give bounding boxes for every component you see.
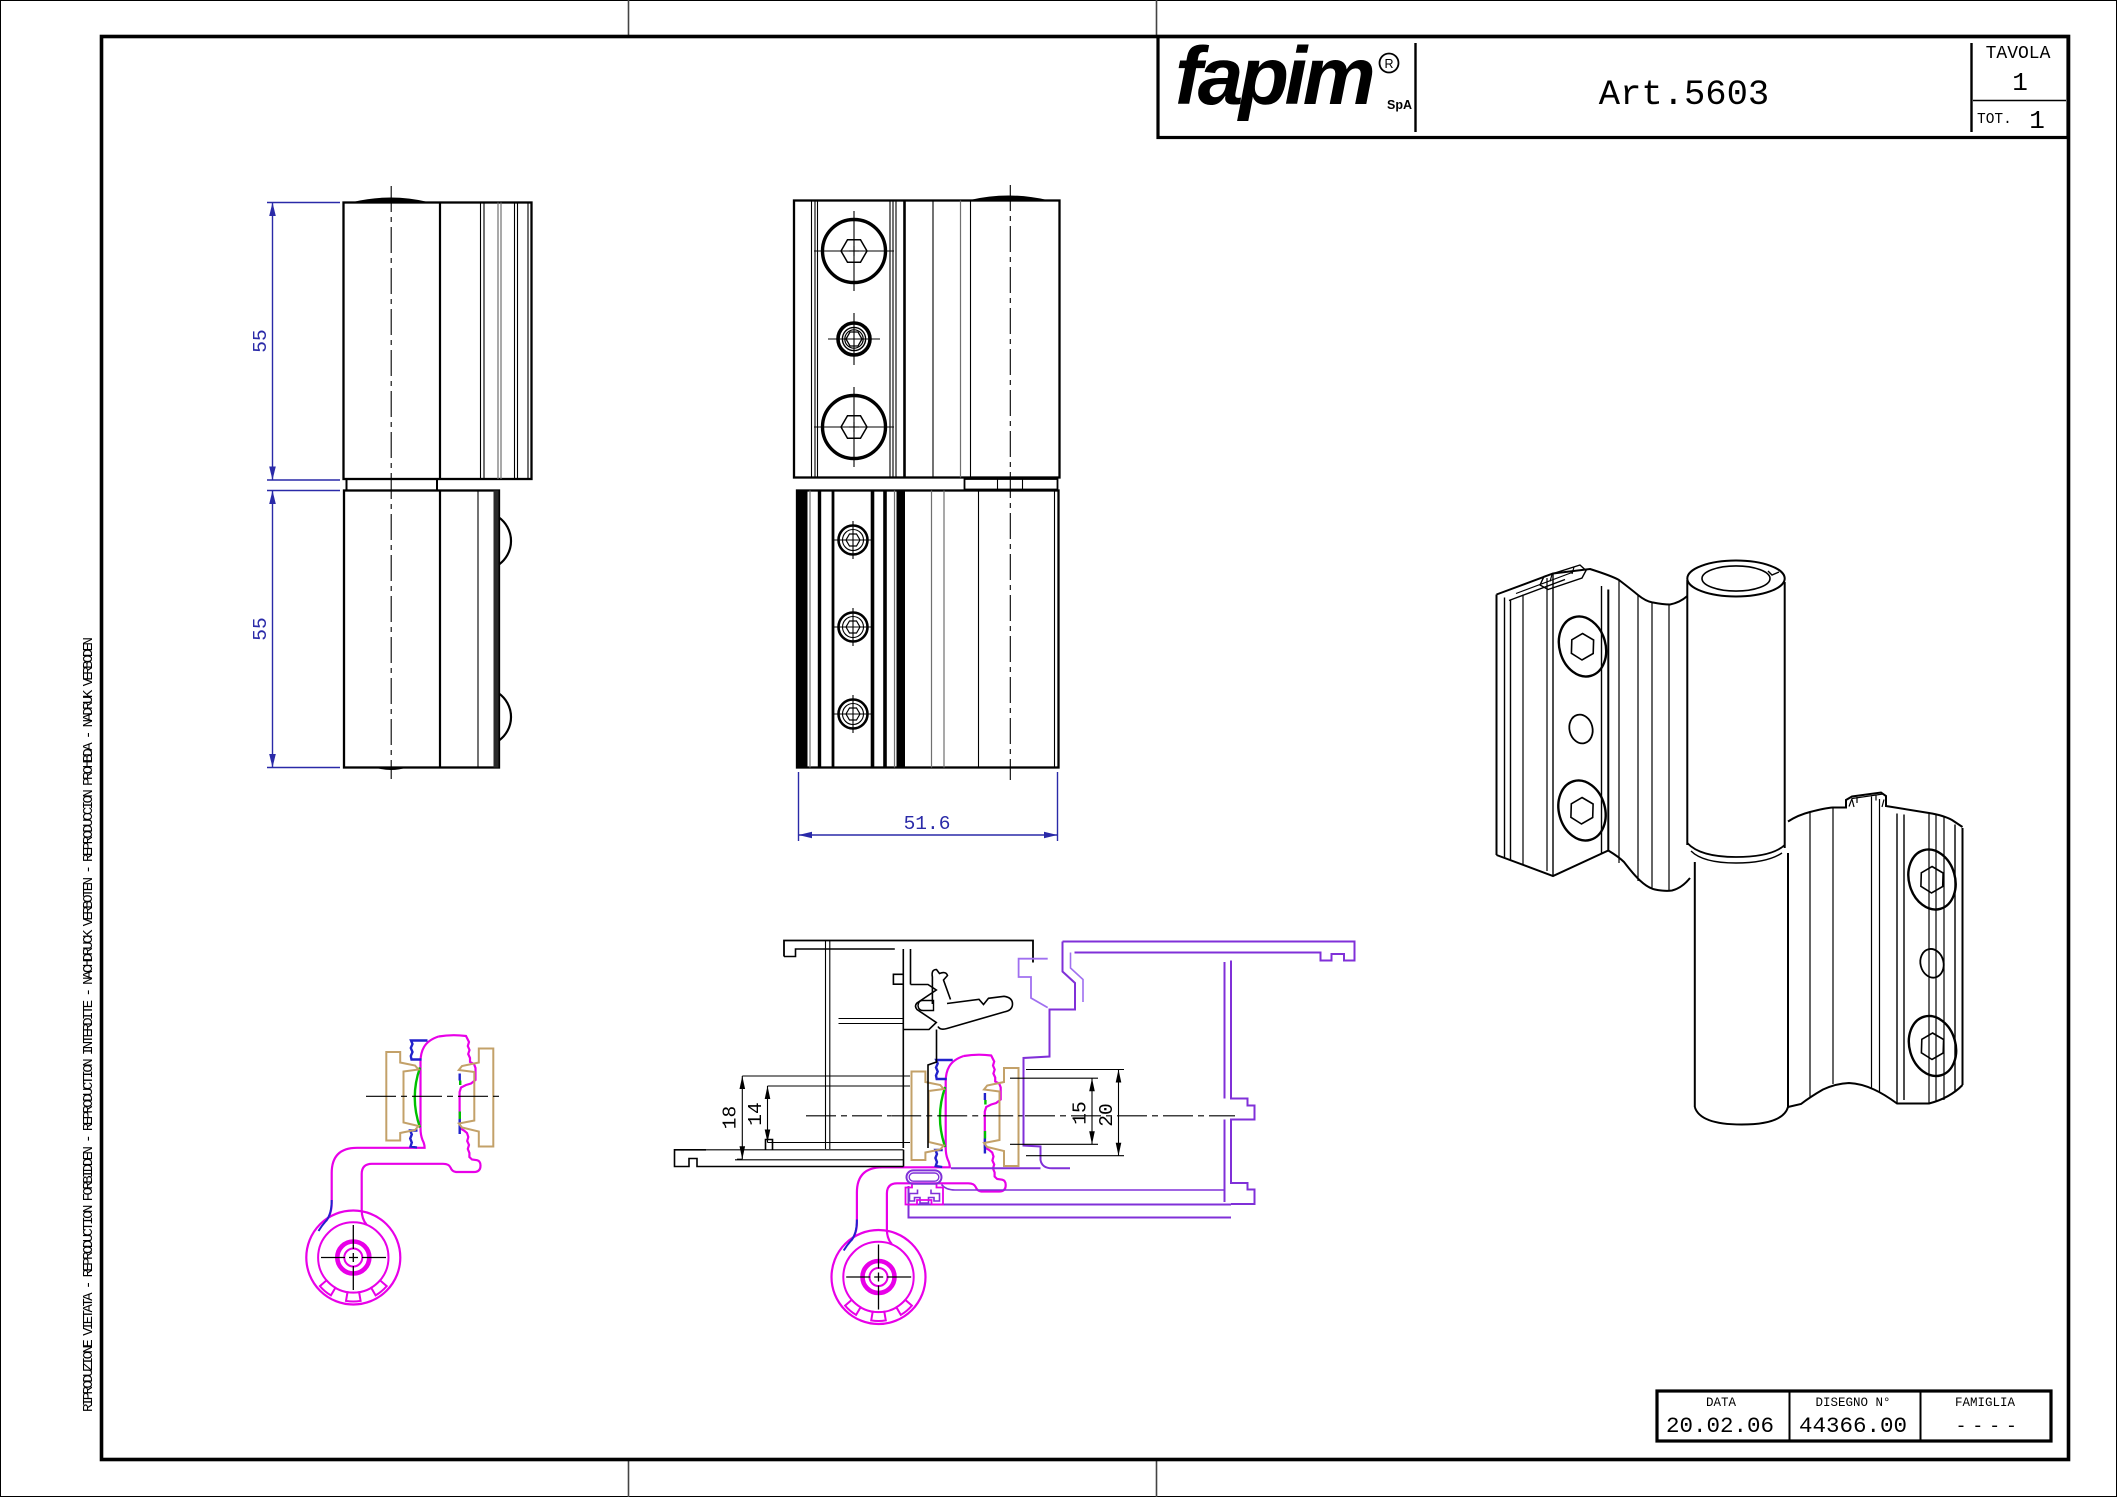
- svg-text:55: 55: [250, 329, 272, 352]
- svg-text:TOT.: TOT.: [1977, 112, 2012, 128]
- svg-text:SpA: SpA: [1387, 98, 1412, 112]
- svg-text:DISEGNO N°: DISEGNO N°: [1815, 1396, 1890, 1410]
- svg-text:TAVOLA: TAVOLA: [1986, 44, 2051, 64]
- svg-text:14: 14: [745, 1102, 767, 1125]
- svg-text:44366.00: 44366.00: [1799, 1413, 1907, 1439]
- svg-text:20.02.06: 20.02.06: [1666, 1413, 1774, 1439]
- svg-text:fapim: fapim: [1175, 31, 1373, 122]
- svg-text:1: 1: [2012, 68, 2028, 98]
- svg-text:RIPRODUZIONE VIETATA - REPRODU: RIPRODUZIONE VIETATA - REPRODUCTION FORB…: [81, 637, 97, 1412]
- svg-text:55: 55: [250, 617, 272, 640]
- svg-text:51.6: 51.6: [904, 813, 951, 835]
- svg-text:DATA: DATA: [1706, 1396, 1737, 1410]
- svg-text:R: R: [1384, 57, 1393, 71]
- svg-text:- - - -: - - - -: [1956, 1417, 2015, 1437]
- svg-text:18: 18: [720, 1106, 742, 1129]
- svg-text:Art.5603: Art.5603: [1599, 74, 1769, 115]
- svg-text:FAMIGLIA: FAMIGLIA: [1955, 1396, 2016, 1410]
- svg-text:20: 20: [1096, 1103, 1118, 1126]
- svg-text:15: 15: [1070, 1101, 1092, 1124]
- svg-text:1: 1: [2029, 106, 2045, 136]
